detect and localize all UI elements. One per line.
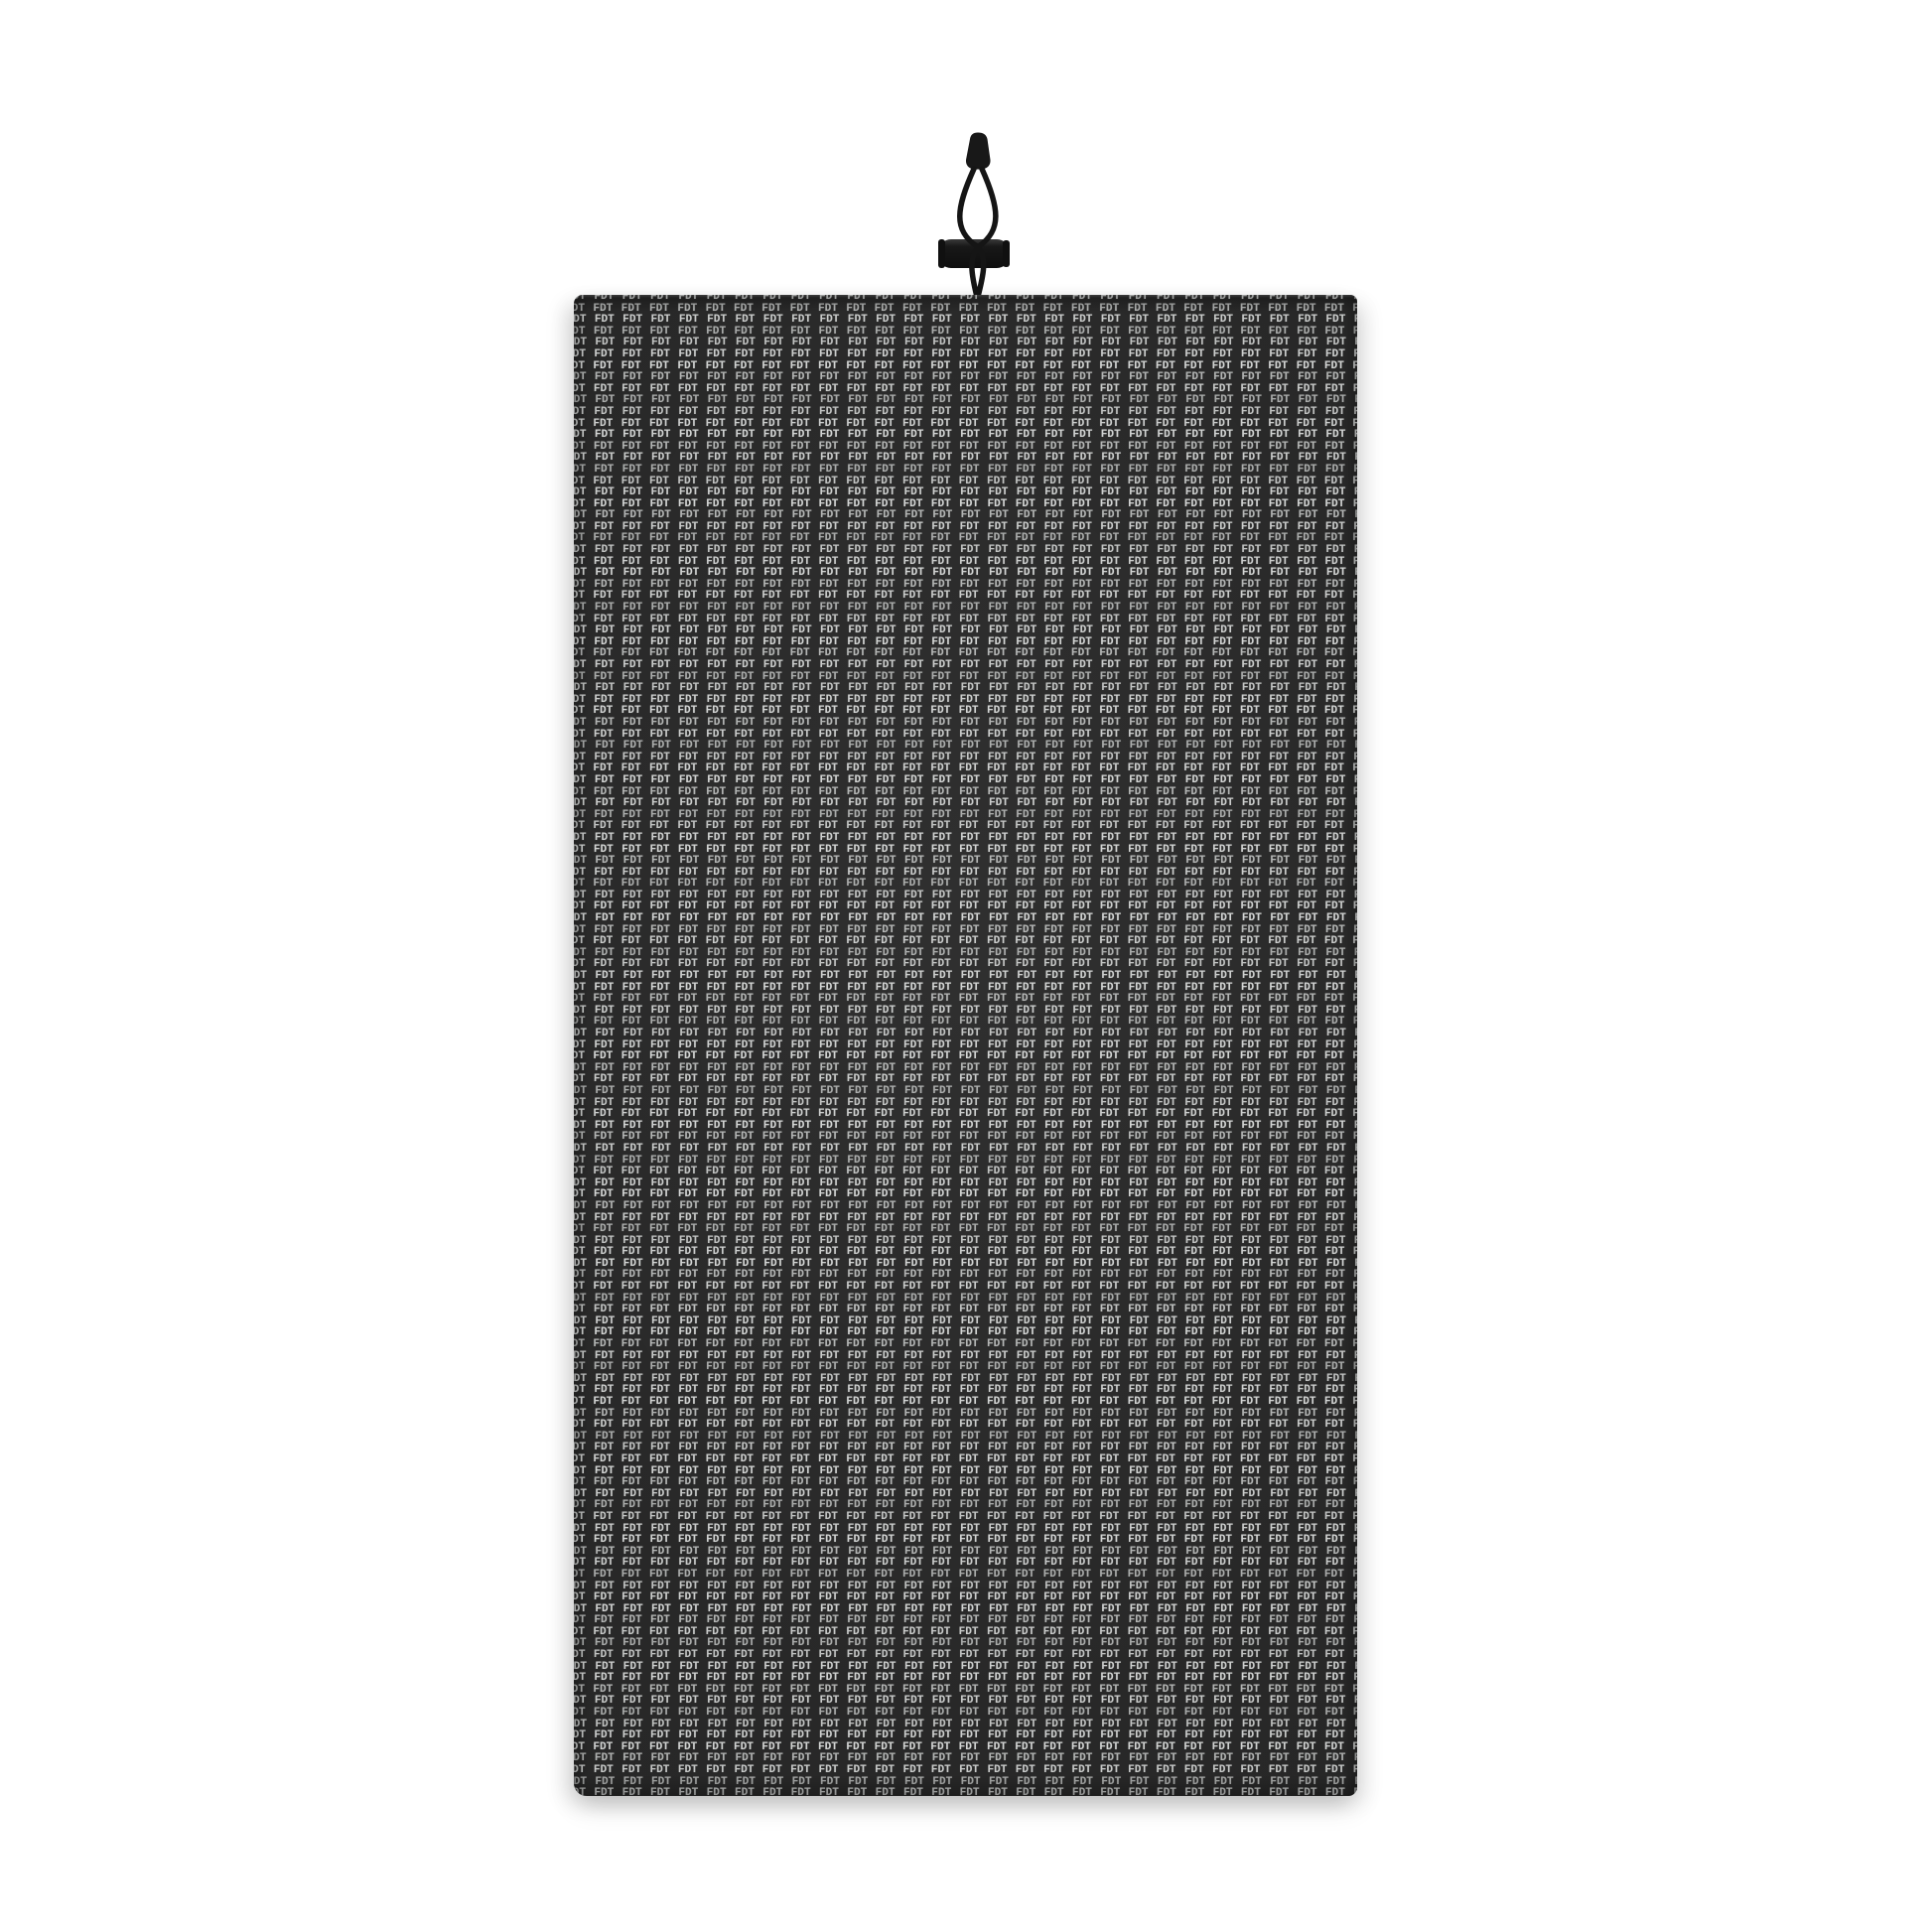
cord-cap-icon <box>966 133 991 170</box>
gaiter-fabric-panel: FDT FDT FDT FDT FDT FDT FDT FDT FDT FDT … <box>574 295 1357 1796</box>
product-photo: FDT FDT FDT FDT FDT FDT FDT FDT FDT FDT … <box>0 0 1932 1932</box>
fdt-pattern: FDT FDT FDT FDT FDT FDT FDT FDT FDT FDT … <box>574 295 1357 1796</box>
pattern-row: FDT FDT FDT FDT FDT FDT FDT FDT FDT FDT … <box>574 1788 1357 1796</box>
drawstring-toggle <box>898 117 1049 298</box>
